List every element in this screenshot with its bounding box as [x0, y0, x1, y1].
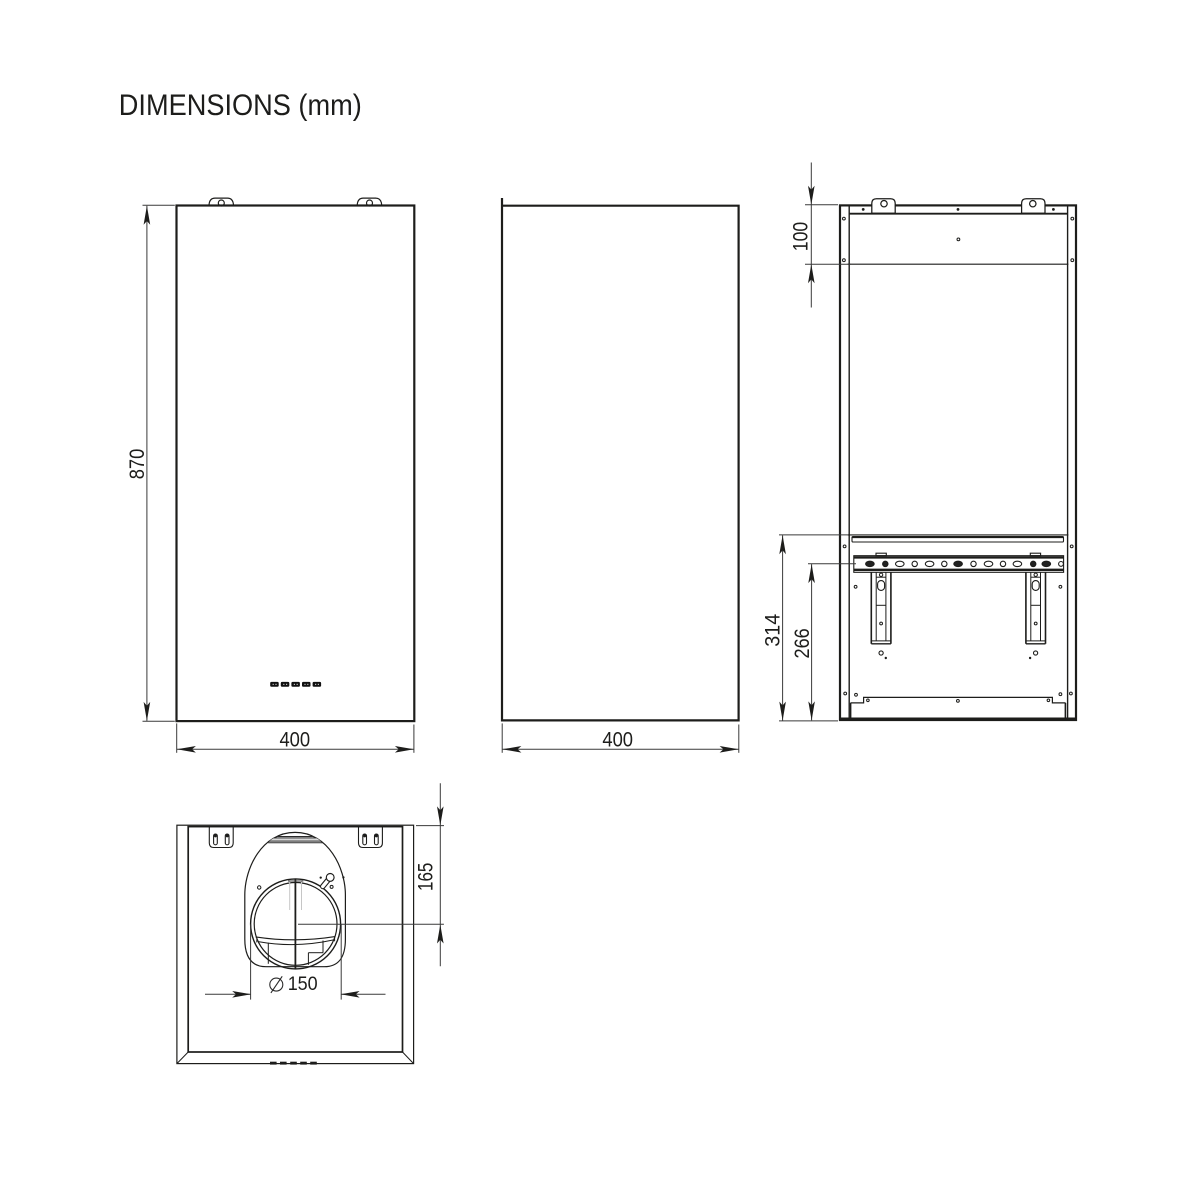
svg-text:400: 400 — [602, 728, 633, 751]
svg-text:DIMENSIONS (mm): DIMENSIONS (mm) — [119, 89, 362, 122]
svg-text:266: 266 — [791, 628, 814, 658]
svg-text:150: 150 — [288, 974, 318, 995]
svg-text:400: 400 — [279, 728, 310, 751]
svg-text:100: 100 — [790, 222, 813, 251]
svg-text:165: 165 — [415, 863, 438, 891]
svg-text:870: 870 — [126, 449, 149, 480]
svg-text:314: 314 — [761, 613, 784, 646]
